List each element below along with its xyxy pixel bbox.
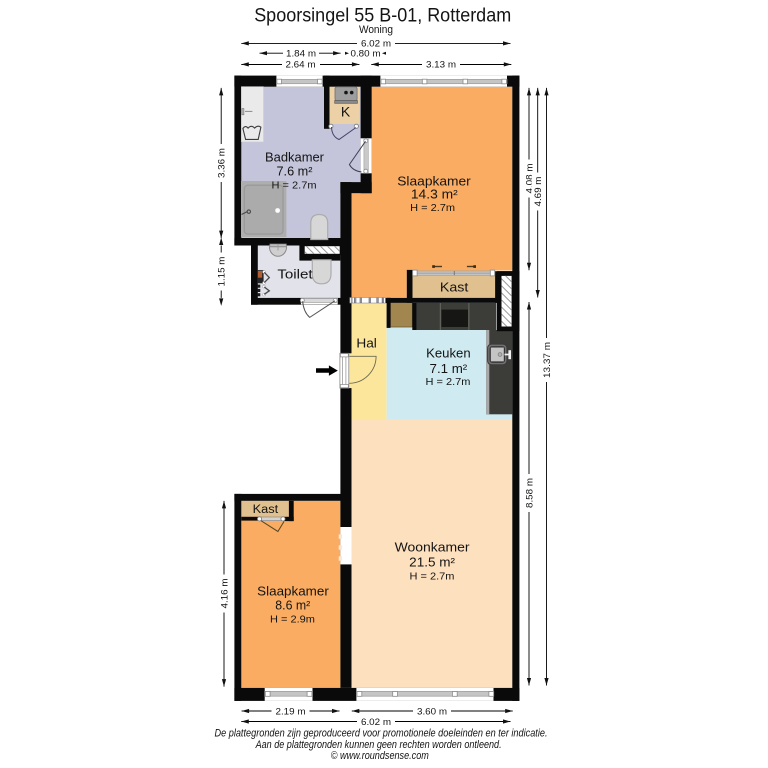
- svg-text:2.19 m: 2.19 m: [276, 706, 306, 716]
- svg-text:13.37 m: 13.37 m: [542, 342, 552, 378]
- svg-text:© www.roundsense.com: © www.roundsense.com: [331, 750, 429, 762]
- svg-text:8.6 m²: 8.6 m²: [275, 599, 310, 613]
- svg-text:Hal: Hal: [356, 337, 377, 351]
- svg-text:Kast: Kast: [253, 504, 279, 516]
- svg-text:Kast: Kast: [440, 281, 469, 295]
- svg-text:K: K: [341, 104, 351, 120]
- svg-text:6.02 m: 6.02 m: [361, 717, 391, 727]
- svg-text:0.80 m: 0.80 m: [351, 49, 381, 59]
- svg-text:Slaapkamer: Slaapkamer: [257, 585, 329, 599]
- svg-text:Badkamer: Badkamer: [265, 150, 324, 164]
- svg-text:7.6 m²: 7.6 m²: [277, 164, 313, 178]
- svg-text:H = 2.7m: H = 2.7m: [272, 180, 317, 191]
- svg-text:3.13 m: 3.13 m: [426, 60, 456, 70]
- svg-text:Woning: Woning: [359, 24, 393, 36]
- svg-text:Slaapkamer: Slaapkamer: [397, 174, 471, 188]
- svg-text:3.36 m: 3.36 m: [217, 148, 227, 178]
- svg-text:8.58 m: 8.58 m: [524, 478, 534, 508]
- svg-text:21.5 m²: 21.5 m²: [409, 555, 455, 569]
- svg-text:1.15 m: 1.15 m: [216, 256, 226, 286]
- svg-text:Aan de plattegronden kunnen ge: Aan de plattegronden kunnen geen rechten…: [255, 739, 502, 751]
- svg-text:De plattegronden zijn geproduc: De plattegronden zijn geproduceerd voor …: [215, 728, 548, 740]
- svg-text:Toilet: Toilet: [277, 268, 313, 282]
- svg-text:2.64 m: 2.64 m: [286, 60, 316, 70]
- svg-text:H = 2.9m: H = 2.9m: [270, 615, 315, 626]
- svg-text:14.3 m²: 14.3 m²: [411, 187, 458, 201]
- svg-text:1.84 m: 1.84 m: [286, 49, 316, 59]
- svg-text:Keuken: Keuken: [426, 347, 471, 361]
- svg-text:4.16 m: 4.16 m: [219, 578, 229, 608]
- svg-text:3.60 m: 3.60 m: [417, 706, 447, 716]
- svg-text:4.69 m: 4.69 m: [533, 176, 543, 206]
- svg-text:H = 2.7m: H = 2.7m: [410, 203, 455, 214]
- svg-text:H = 2.7m: H = 2.7m: [426, 377, 471, 388]
- svg-text:Woonkamer: Woonkamer: [395, 541, 470, 555]
- svg-text:7.1 m²: 7.1 m²: [430, 362, 468, 376]
- svg-text:6.02 m: 6.02 m: [361, 39, 391, 49]
- svg-text:H = 2.7m: H = 2.7m: [410, 572, 455, 583]
